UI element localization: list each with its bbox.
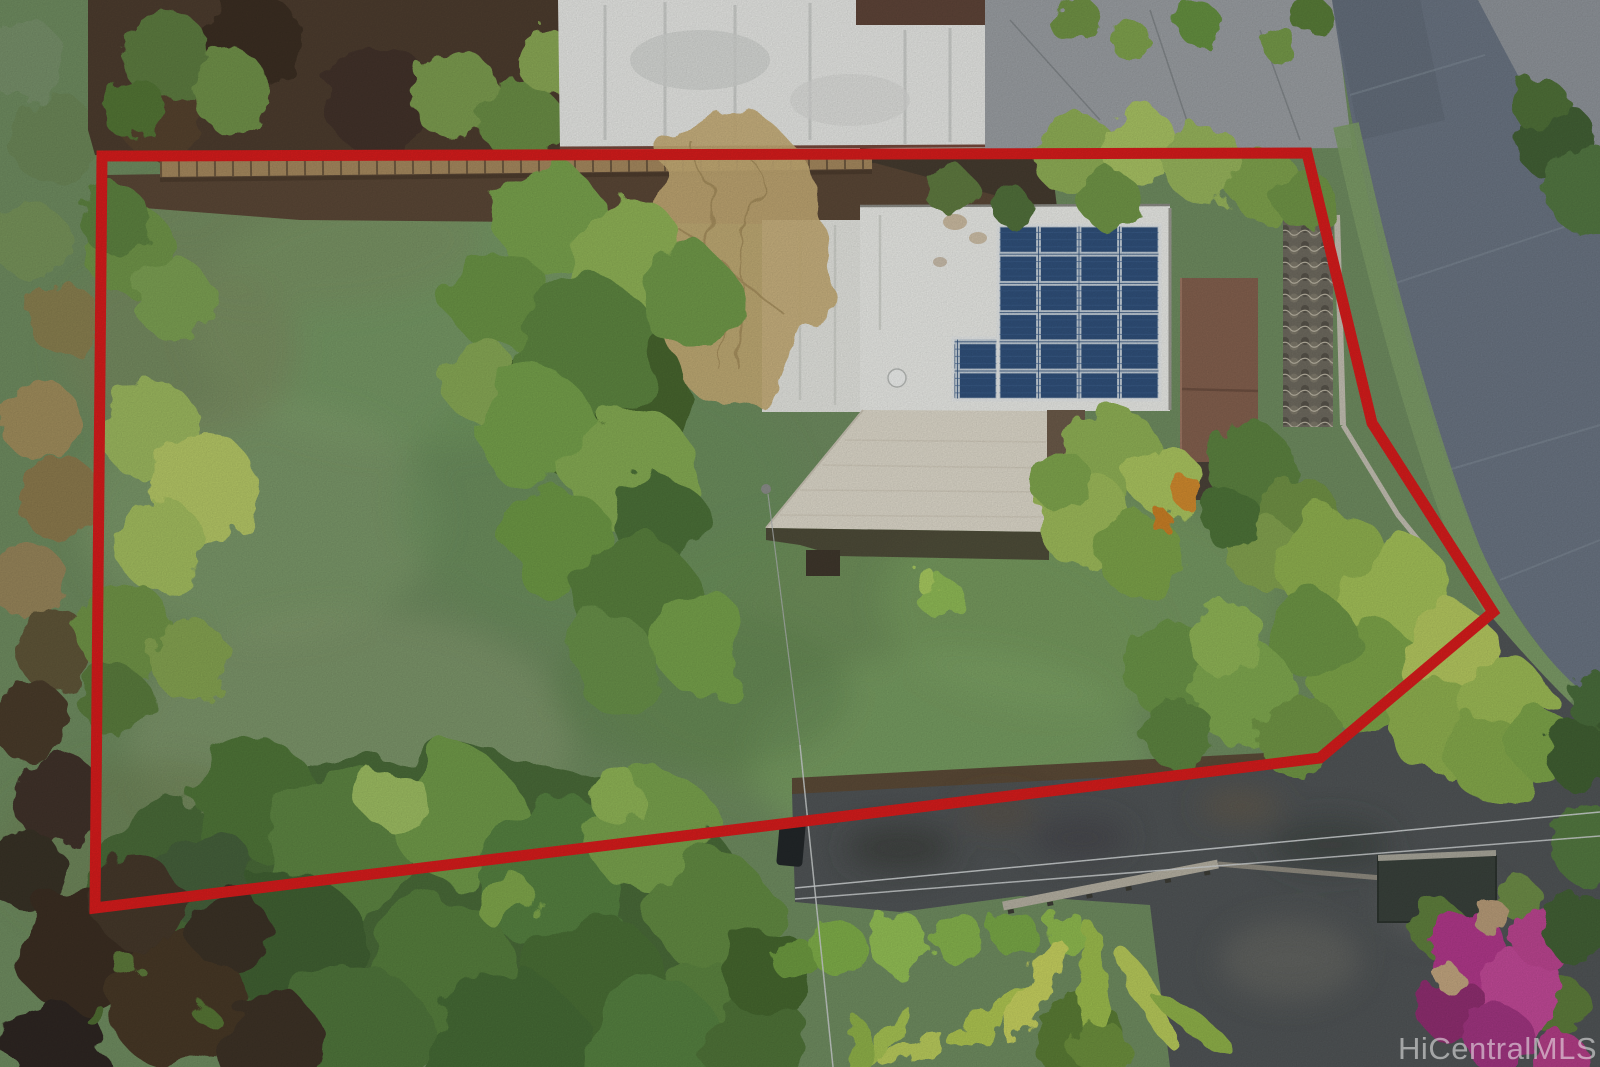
watermark: HiCentralMLS	[1398, 1031, 1597, 1066]
photo-grain	[0, 0, 1600, 1067]
aerial-photo-stage: HiCentralMLS	[0, 0, 1600, 1067]
aerial-photo: HiCentralMLS	[0, 0, 1600, 1067]
